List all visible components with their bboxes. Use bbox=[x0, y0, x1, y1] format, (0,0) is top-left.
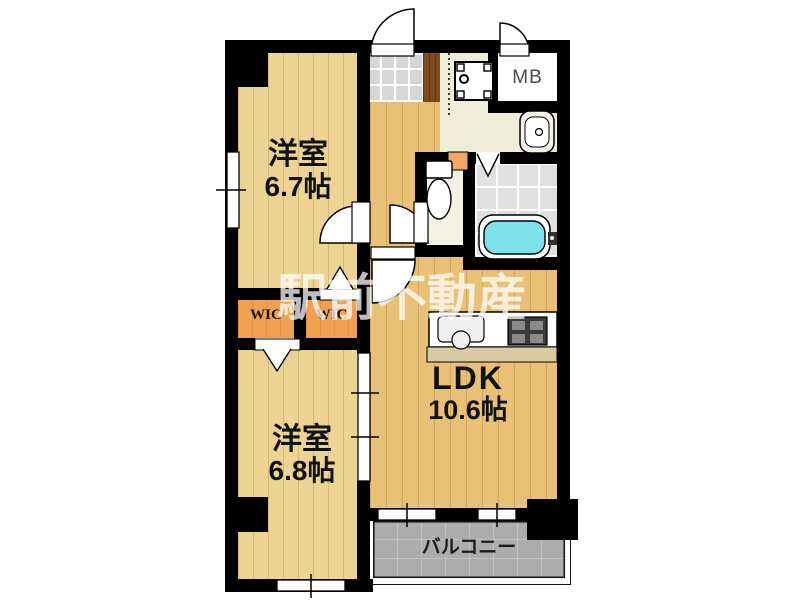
ldk-name-label: LDK bbox=[398, 362, 538, 396]
stove-burner-4 bbox=[530, 334, 543, 343]
washbasin bbox=[520, 111, 554, 153]
room-68-name-label: 洋室 bbox=[242, 424, 362, 456]
ldk-size-label: 10.6帖 bbox=[398, 396, 538, 424]
pillar-bottom-left bbox=[238, 497, 268, 532]
wall-toilet-left-upper bbox=[415, 164, 427, 203]
wall-wic-bottom-right bbox=[300, 338, 370, 350]
bathtub bbox=[479, 215, 557, 259]
pan-corner-1 bbox=[457, 64, 464, 71]
toilet-door-leaf bbox=[414, 202, 428, 243]
pan-corner-3 bbox=[457, 91, 464, 98]
stove-burner-3 bbox=[512, 334, 525, 343]
balcony-label: バルコニー bbox=[373, 538, 565, 558]
wall-toilet-bath-divider bbox=[463, 164, 475, 257]
room-68-size-label: 6.8帖 bbox=[242, 456, 362, 485]
bath-folding-door bbox=[477, 154, 499, 176]
bathtub-faucet-knob bbox=[550, 236, 554, 240]
pillar-top-left bbox=[238, 53, 268, 87]
ldk-door-leaf bbox=[371, 247, 415, 259]
toilet-bowl bbox=[427, 179, 451, 219]
watermark-text: 駅前不動産 bbox=[272, 272, 532, 325]
mb-door-leaf bbox=[500, 44, 529, 56]
wall-room67-right-upper bbox=[357, 53, 370, 203]
wall-wc-top-right bbox=[500, 152, 557, 164]
pan-drain bbox=[460, 75, 468, 83]
toilet bbox=[426, 161, 452, 219]
pillar-bottom-right bbox=[527, 499, 578, 540]
room-67-name-label: 洋室 bbox=[238, 139, 358, 171]
floorplan: 洋室 6.7帖 洋室 6.8帖 LDK 10.6帖 WIC WIC MB バルコ… bbox=[0, 0, 800, 600]
pan-corner-4 bbox=[484, 91, 491, 98]
wall-toilet-bottom bbox=[415, 245, 475, 257]
toilet-tank bbox=[426, 161, 452, 178]
pan-corner-2 bbox=[484, 64, 491, 71]
room67-door-leaf bbox=[352, 202, 370, 243]
kitchen-sink-bump bbox=[452, 331, 470, 349]
wall-right bbox=[557, 40, 570, 512]
washbasin-drain bbox=[536, 129, 543, 136]
wall-room68-right-bottom bbox=[357, 481, 370, 579]
entrance-door-leaf bbox=[371, 44, 414, 56]
bathtub-basin bbox=[484, 221, 545, 254]
washing-machine-pan bbox=[455, 62, 493, 100]
wic-left-folding-door bbox=[263, 349, 291, 371]
wall-left bbox=[225, 40, 238, 592]
meter-box-label: MB bbox=[498, 68, 557, 88]
room-67-size-label: 6.7帖 bbox=[238, 172, 358, 201]
wall-wic-bottom-left bbox=[238, 338, 255, 350]
wic-left-opening bbox=[255, 339, 300, 350]
